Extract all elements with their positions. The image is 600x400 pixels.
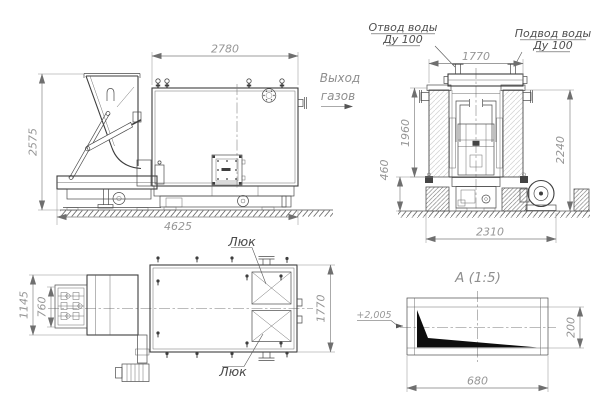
gas-outlet-stub [298,97,307,109]
dim-text-2575: 2575 [27,128,40,156]
detail-title: А (1:5) [454,270,501,286]
dim-text-460: 460 [378,160,391,181]
top-view: Люк Люк 1145 760 1770 [18,234,336,382]
feed-duct [137,160,151,186]
dim-text-1770-front: 1770 [462,50,490,63]
gas-flow-arrow-icon [321,104,353,109]
flange-stub-top [259,257,275,266]
scraper-blade-profile [417,310,537,347]
foundation-block-right [502,188,527,211]
handle-icon [107,89,114,102]
boiler-base [154,186,294,210]
water-outlet-stub [453,64,464,74]
water-inlet-label: Подвод воды Ду 100 [515,27,592,66]
elevation-mark-text: +2,005 [356,310,391,321]
fuel-hopper [69,74,141,180]
hatch-label-bottom: Люк [218,334,263,379]
water-outlet-line2: Ду 100 [382,33,423,46]
gas-label-line1: Выход [320,71,360,85]
feeder-motor [116,364,150,382]
hydraulic-cylinder [87,122,133,151]
dim-text-680: 680 [467,375,488,388]
boiler-body-side [152,79,307,210]
gas-outlet-label: Выход газов [320,71,360,109]
feeder-shafts [58,293,84,320]
door-handle [222,168,231,171]
dim-text-1770-top: 1770 [315,295,328,323]
hatch-bottom [252,311,291,342]
dim-text-1145: 1145 [18,291,31,319]
ground-hatch [398,211,590,217]
feeder-carriage [57,160,164,210]
dim-text-1960: 1960 [399,119,412,147]
foundation-block-left [426,187,449,211]
water-inlet-stub [508,64,519,74]
front-view: Отвод воды Ду 100 Подвод воды Ду 100 177… [369,21,592,243]
dim-text-2310: 2310 [476,226,504,239]
dim-base-height: 460 [378,160,426,212]
lifting-lug-icon [156,79,160,88]
dim-total-height: 2575 [27,74,85,210]
water-outlet-label: Отвод воды Ду 100 [369,21,455,67]
dim-boiler-length: 2780 [152,43,298,86]
right-edge-brackets [297,299,302,323]
boiler-assembly-drawing: 2780 2575 4625 Выход газов [0,0,600,400]
flange-stub-bottom [259,352,275,361]
foundation-block-far-right [574,189,589,211]
dim-feeder-width: 1145 [18,275,88,335]
elevation-mark-label: +2,005 [356,310,403,326]
dim-text-4625: 4625 [164,220,192,233]
hatch-top [252,272,291,304]
technical-drawing-page: 2780 2575 4625 Выход газов [0,0,600,400]
feeder-top [55,275,149,382]
side-flange-right [523,90,533,103]
dim-text-2780: 2780 [211,43,239,56]
detail-view-a: А (1:5) +2,005 680 200 [356,270,584,392]
dim-total-height-front: 2240 [525,90,574,211]
lifting-lug-icon [247,79,251,88]
lifting-lug-icon [280,79,284,88]
dim-feeder-inner-width: 760 [36,287,56,327]
sight-flange [262,89,276,103]
water-inlet-line2: Ду 100 [532,39,573,52]
ground-hatch [60,210,333,216]
dim-text-200: 200 [565,317,578,338]
side-view: 2780 2575 4625 Выход газов [27,43,361,234]
access-door [212,155,245,185]
lifting-bolts [156,256,288,358]
gas-label-line2: газов [321,89,355,103]
dim-text-2240: 2240 [554,136,567,164]
lifting-lug-icon [165,79,169,88]
side-flange-left [420,90,430,103]
dim-text-760: 760 [36,297,49,318]
hatch-top-text: Люк [227,234,256,249]
